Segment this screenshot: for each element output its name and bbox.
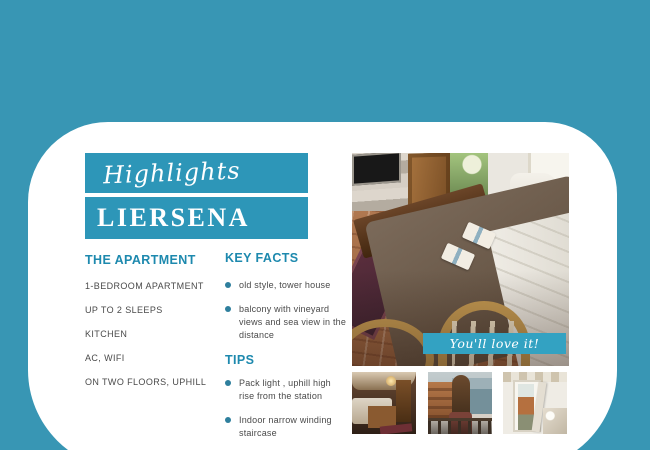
- apartment-list: 1-BEDROOM APARTMENT UP TO 2 SLEEPS KITCH…: [85, 281, 230, 387]
- flyer-background: Highlights LIERSENA THE APARTMENT 1-BEDR…: [0, 0, 650, 450]
- tips-heading: TIPS: [225, 353, 351, 367]
- balcony-railing: [428, 418, 492, 434]
- list-item: KITCHEN: [85, 329, 230, 339]
- key-facts-heading: KEY FACTS: [225, 251, 351, 265]
- thumb-photo-open-door: [503, 372, 567, 434]
- list-item: AC, WIFI: [85, 353, 230, 363]
- highlights-banner: Highlights: [85, 153, 308, 193]
- title-banner: LIERSENA: [85, 197, 308, 239]
- main-photo-dining-room: You'll love it!: [352, 153, 569, 366]
- list-item: UP TO 2 SLEEPS: [85, 305, 230, 315]
- list-item: ON TWO FLOORS, UPHILL: [85, 377, 230, 387]
- bullet-item: old style, tower house: [225, 279, 347, 292]
- bed-corner: [543, 408, 567, 434]
- list-item: 1-BEDROOM APARTMENT: [85, 281, 230, 291]
- bullet-item: Indoor narrow winding staircase: [225, 414, 347, 440]
- highlights-script-text: Highlights: [103, 157, 241, 190]
- content-card: Highlights LIERSENA THE APARTMENT 1-BEDR…: [28, 122, 617, 450]
- bullet-item: Pack light , uphill high rise from the s…: [225, 377, 347, 403]
- facts-tips-section: KEY FACTS old style, tower house balcony…: [225, 251, 351, 450]
- key-facts-list: old style, tower house balcony with vine…: [225, 279, 351, 342]
- page-title: LIERSENA: [97, 203, 250, 233]
- apartment-section: THE APARTMENT 1-BEDROOM APARTMENT UP TO …: [85, 253, 230, 401]
- apartment-heading: THE APARTMENT: [85, 253, 230, 267]
- wooden-door: [396, 380, 411, 422]
- thumb-photo-bedroom: [352, 372, 416, 434]
- caption-banner: You'll love it!: [423, 333, 566, 354]
- tips-list: Pack light , uphill high rise from the s…: [225, 377, 351, 440]
- caption-script-text: You'll love it!: [450, 336, 540, 351]
- thumb-photo-balcony-sea: [428, 372, 492, 434]
- bullet-item: balcony with vineyard views and sea view…: [225, 303, 347, 342]
- ceiling-lamp: [386, 376, 396, 386]
